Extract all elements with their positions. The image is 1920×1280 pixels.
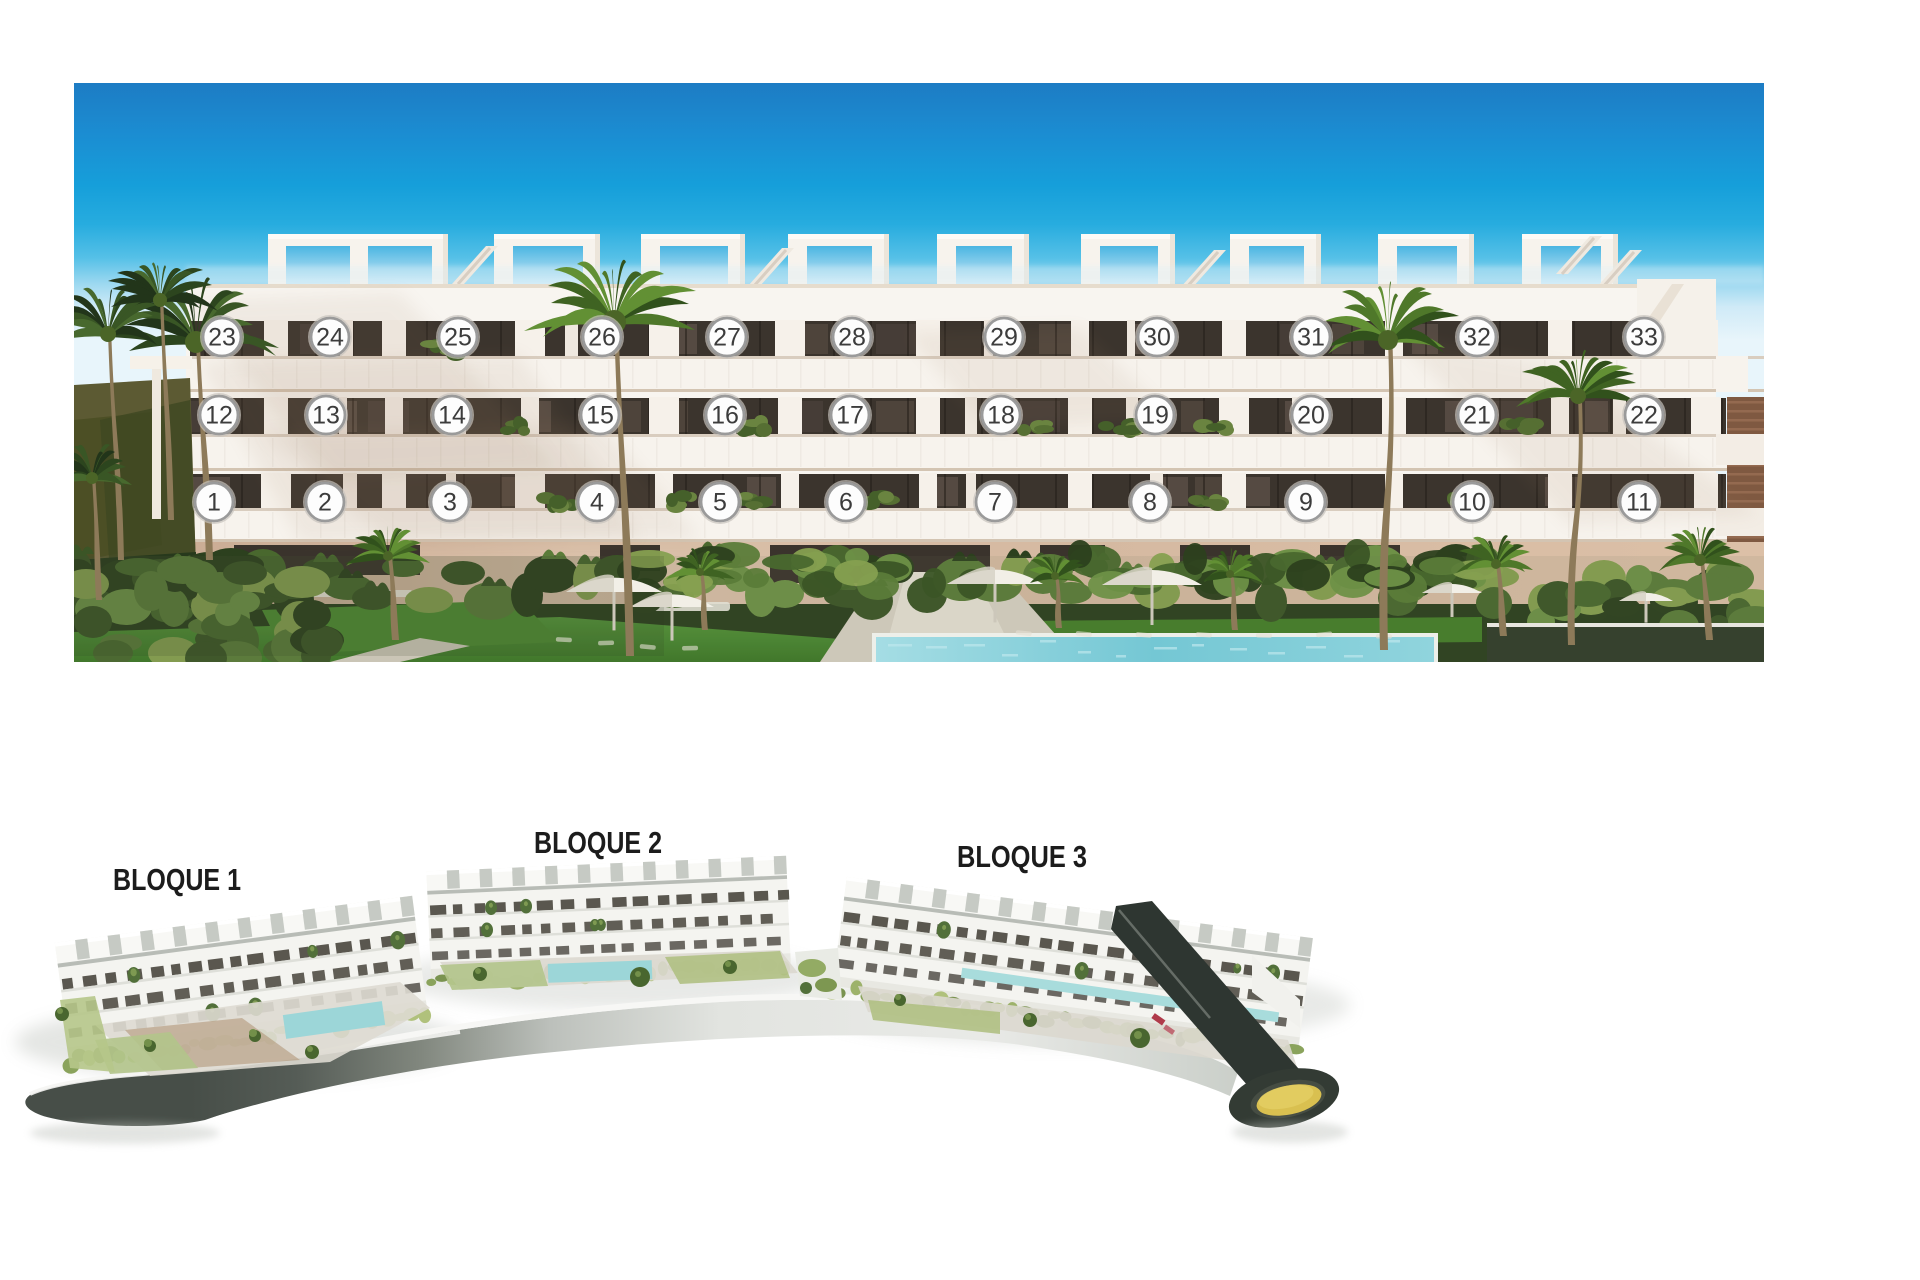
svg-text:7: 7 bbox=[988, 489, 1002, 517]
svg-text:10: 10 bbox=[1458, 489, 1486, 517]
svg-text:17: 17 bbox=[836, 402, 864, 430]
svg-text:28: 28 bbox=[838, 324, 866, 352]
svg-text:5: 5 bbox=[713, 489, 727, 517]
svg-text:BLOQUE 1: BLOQUE 1 bbox=[113, 862, 241, 897]
svg-text:9: 9 bbox=[1299, 489, 1313, 517]
svg-text:4: 4 bbox=[590, 489, 604, 517]
svg-text:2: 2 bbox=[318, 489, 332, 517]
svg-text:30: 30 bbox=[1143, 324, 1171, 352]
svg-text:18: 18 bbox=[987, 402, 1015, 430]
svg-text:15: 15 bbox=[586, 402, 614, 430]
svg-text:25: 25 bbox=[444, 324, 472, 352]
svg-text:26: 26 bbox=[588, 324, 616, 352]
svg-text:23: 23 bbox=[208, 324, 236, 352]
svg-text:29: 29 bbox=[990, 324, 1018, 352]
svg-text:33: 33 bbox=[1630, 324, 1658, 352]
svg-text:8: 8 bbox=[1143, 489, 1157, 517]
svg-text:6: 6 bbox=[839, 489, 853, 517]
svg-text:20: 20 bbox=[1297, 402, 1325, 430]
svg-text:32: 32 bbox=[1463, 324, 1491, 352]
svg-text:31: 31 bbox=[1297, 324, 1325, 352]
svg-text:1: 1 bbox=[207, 489, 221, 517]
svg-text:19: 19 bbox=[1141, 402, 1169, 430]
svg-text:14: 14 bbox=[438, 402, 466, 430]
svg-text:22: 22 bbox=[1630, 402, 1658, 430]
svg-text:BLOQUE 3: BLOQUE 3 bbox=[957, 839, 1087, 874]
svg-text:11: 11 bbox=[1626, 489, 1652, 517]
svg-text:3: 3 bbox=[443, 489, 457, 517]
svg-text:13: 13 bbox=[312, 402, 340, 430]
svg-text:16: 16 bbox=[711, 402, 739, 430]
svg-text:BLOQUE 2: BLOQUE 2 bbox=[534, 825, 662, 860]
svg-text:21: 21 bbox=[1463, 402, 1491, 430]
svg-text:12: 12 bbox=[205, 402, 233, 430]
svg-text:24: 24 bbox=[316, 324, 344, 352]
svg-text:27: 27 bbox=[713, 324, 741, 352]
